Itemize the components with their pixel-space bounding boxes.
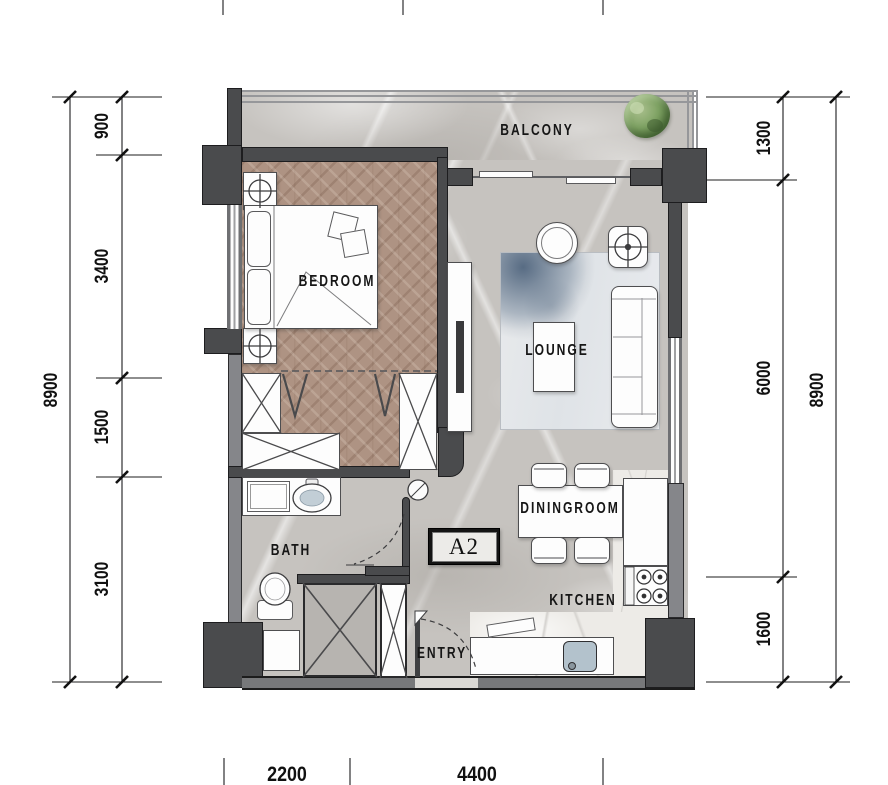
wall-balcony-left <box>227 88 242 148</box>
washing-machine <box>263 630 300 671</box>
bath-label: BATH <box>271 542 311 560</box>
unit-tag: A2 <box>428 528 500 565</box>
dim-bottom-2200: 2200 <box>267 763 307 785</box>
lounge-window <box>668 338 682 483</box>
dining-chair <box>531 463 567 488</box>
kitchen-counter-right <box>623 478 668 566</box>
basin-cabinet <box>247 481 290 512</box>
sliding-door-panel <box>479 171 533 178</box>
sliding-door-panel <box>566 177 616 184</box>
wardrobe <box>242 373 281 433</box>
sofa <box>611 286 658 428</box>
wardrobe <box>242 433 340 470</box>
bedroom-label: BEDROOM <box>299 273 376 291</box>
balcony-railing-line <box>237 95 697 97</box>
duct-shaft <box>303 583 377 677</box>
dining-chair <box>531 537 567 564</box>
balcony-label: BALCONY <box>500 122 573 140</box>
wall-right-kitchen <box>668 483 684 618</box>
bed-pillow <box>247 269 271 325</box>
kitchen-label: KITCHEN <box>549 592 616 610</box>
entry-label: ENTRY <box>417 645 467 663</box>
column-top-left <box>202 145 242 205</box>
round-side-table-inner <box>541 227 573 259</box>
dim-right-6000: 6000 <box>754 361 776 396</box>
floor-plan: BALCONY BEDROOM LOUNGE DININGROOM KITCHE… <box>0 0 888 785</box>
tv <box>456 321 464 393</box>
diningroom-label: DININGROOM <box>520 500 619 518</box>
wall-corridor-corner <box>438 427 464 477</box>
column-bottom-right <box>645 618 695 688</box>
nightstand <box>243 328 277 364</box>
wall-sliding-stub-left <box>447 168 473 186</box>
wall-sliding-stub-right <box>630 168 662 186</box>
stove <box>623 566 668 606</box>
lounge-label: LOUNGE <box>525 342 588 360</box>
dim-bottom-4400: 4400 <box>457 763 497 785</box>
unit-tag-label: A2 <box>432 532 497 562</box>
dim-right-1300: 1300 <box>754 121 776 156</box>
dining-chair <box>574 537 610 564</box>
entry-door-threshold <box>415 678 478 688</box>
bedroom-window <box>227 205 242 329</box>
wall-bath-door-jamb <box>402 497 410 571</box>
balcony-railing-line <box>237 90 697 92</box>
dim-right-1600: 1600 <box>754 612 776 647</box>
column-top-right <box>662 148 707 203</box>
toilet-tank <box>257 600 293 620</box>
dim-left-3400: 3400 <box>92 249 114 284</box>
deco-pillow <box>340 229 369 258</box>
dim-left-3100: 3100 <box>92 562 114 597</box>
dining-chair <box>574 463 610 488</box>
wall-left-lower <box>228 354 242 624</box>
dim-left-900: 900 <box>92 113 114 139</box>
wall-right-upper <box>668 202 682 338</box>
wall-bath-lower-step <box>365 566 410 576</box>
dim-left-1500: 1500 <box>92 410 114 445</box>
floor-lamp <box>608 226 648 268</box>
dim-left-total: 8900 <box>41 373 63 408</box>
column-mid-left <box>204 328 242 354</box>
kitchen-sink <box>563 641 597 672</box>
wardrobe <box>399 373 437 470</box>
wall-bedroom-top <box>242 147 448 162</box>
entry-closet <box>380 583 407 678</box>
dim-right-total: 8900 <box>807 373 829 408</box>
bed-pillow <box>247 211 271 267</box>
